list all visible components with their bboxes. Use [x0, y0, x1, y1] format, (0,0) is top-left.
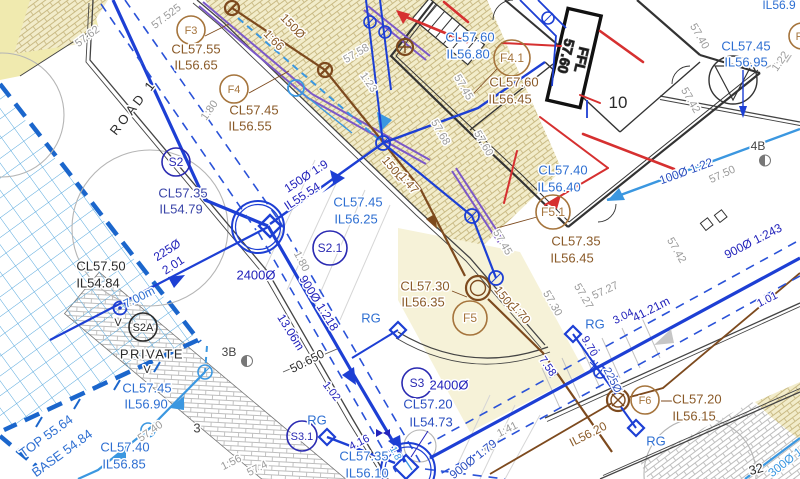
- node-label-f4: F4: [228, 84, 241, 96]
- node-label-s3: S3: [410, 376, 425, 390]
- label-il56-80: IL56.80: [446, 47, 489, 62]
- label-il56-25: IL56.25: [334, 212, 377, 227]
- label-il56-20: IL56.20: [567, 419, 609, 450]
- sw-main-lower: [268, 226, 405, 462]
- label-3: 3: [193, 421, 200, 436]
- label-cl57-20: CL57.20: [672, 392, 721, 407]
- label-2400-: 2400Ø: [429, 378, 468, 393]
- label-rg: RG: [361, 311, 381, 326]
- label-1-22: 1:22: [770, 49, 792, 73]
- label-900-1-218: 900Ø 1:218: [296, 273, 341, 334]
- node-label-f3: F3: [185, 25, 198, 37]
- label-il54-79: IL54.79: [159, 202, 202, 217]
- label-3-04: 3.04: [611, 307, 636, 327]
- label-cl57-60: CL57.60: [445, 30, 494, 45]
- label-rg: RG: [307, 413, 327, 428]
- node-label-f6: F6: [639, 395, 652, 407]
- label-rg: RG: [585, 317, 605, 332]
- label-2400-: 2400Ø: [236, 268, 275, 283]
- label-cl57-35: CL57.35: [158, 186, 207, 201]
- label-cl57-40: CL57.40: [538, 163, 587, 178]
- label-il56-9: IL56.9: [762, 0, 796, 12]
- label-cl57-45: CL57.45: [229, 103, 278, 118]
- label-cl57-45: CL57.45: [721, 39, 770, 54]
- node-label-f5.1: F5.1: [541, 205, 565, 219]
- node-label-s2a: S2A: [133, 322, 154, 334]
- manhole-s2-icon: [232, 201, 284, 253]
- drainage-plan-svg: FFL 57.60: [0, 0, 800, 479]
- label-cl57-45: CL57.45: [333, 195, 382, 210]
- drainage-plan-page: FFL 57.60: [0, 0, 800, 479]
- label-cl57-50: CL57.50: [76, 259, 125, 274]
- label-il54-73: IL54.73: [409, 415, 452, 430]
- label-100-1-22: 100Ø 1:22: [657, 155, 715, 187]
- node-label-f4.1: F4.1: [500, 51, 524, 65]
- label-57-525: 57.525: [149, 2, 183, 32]
- label-v: V: [143, 364, 151, 376]
- label-10: 10: [609, 93, 628, 112]
- label-il56-65: IL56.65: [174, 58, 217, 73]
- label-3b: 3B: [222, 345, 237, 359]
- node-label-s2: S2: [169, 155, 184, 169]
- label-cl57-35: CL57.35: [551, 234, 600, 249]
- sw-arrowhead-icon: [168, 275, 185, 288]
- label-private: PRIVATE: [120, 347, 184, 362]
- kerb-front-building: [660, 96, 800, 122]
- label-il56-35: IL56.35: [401, 295, 444, 310]
- node-label-f5: F5: [463, 311, 477, 325]
- survey-marker-icon: [760, 155, 766, 166]
- survey-marker-icon: [242, 356, 248, 367]
- label-1-80: 1:80: [199, 98, 221, 122]
- label-1-02: 1.02: [320, 379, 343, 403]
- surface-fills: [0, 0, 800, 479]
- label-57-42: 57.42: [664, 236, 688, 266]
- label-il56-55: IL56.55: [228, 119, 271, 134]
- label-il56-45: IL56.45: [488, 92, 531, 107]
- label-cl57-20: CL57.20: [403, 397, 452, 412]
- label-cl57-60: CL57.60: [489, 75, 538, 90]
- label-cl57-45: CL57.45: [122, 381, 171, 396]
- label-cl57-55: CL57.55: [171, 42, 220, 57]
- label-57-27: 57.27: [571, 282, 595, 312]
- label-il56-85: IL56.85: [102, 457, 145, 472]
- label-il54-84: IL54.84: [76, 276, 119, 291]
- label-rg: RG: [646, 434, 666, 449]
- label-v: V: [114, 317, 122, 329]
- label-il56-40: IL56.40: [537, 180, 580, 195]
- label-il56-10: IL56.10: [345, 466, 388, 479]
- label-41-21m: 41.21m: [630, 294, 672, 325]
- door-arc: [672, 66, 690, 84]
- label-900-1-243: 900Ø 1:243: [722, 221, 785, 262]
- label-cl57-30: CL57.30: [400, 279, 449, 294]
- door-arc: [598, 204, 616, 222]
- node-label-s3.1: S3.1: [291, 431, 314, 443]
- label-il56-15: IL56.15: [672, 409, 715, 424]
- label-il56-90: IL56.90: [124, 397, 167, 412]
- label-4b: 4B: [751, 139, 766, 153]
- gate-valve-icon: [376, 429, 383, 437]
- label-cl57-35: CL57.35: [339, 449, 388, 464]
- label-road-1: ROAD 1: [107, 76, 160, 138]
- label-il56-95: IL56.95: [724, 55, 767, 70]
- label-il56-45: IL56.45: [550, 251, 593, 266]
- label-57-27: 57.27: [590, 280, 620, 303]
- node-label-s2.1: S2.1: [318, 241, 343, 255]
- node-label-f7: F7: [796, 31, 800, 43]
